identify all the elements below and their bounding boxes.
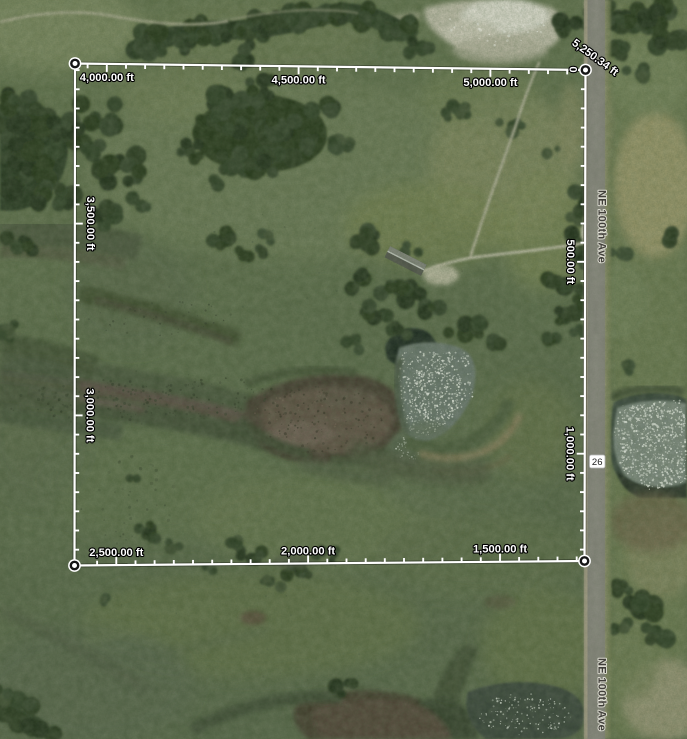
- svg-text:0: 0: [567, 66, 579, 72]
- svg-text:4,500.00 ft: 4,500.00 ft: [272, 74, 326, 86]
- svg-text:3,000.00 ft: 3,000.00 ft: [84, 388, 96, 442]
- svg-text:2,000.00 ft: 2,000.00 ft: [281, 545, 335, 557]
- svg-text:26: 26: [592, 457, 603, 468]
- svg-text:2,500.00 ft: 2,500.00 ft: [89, 547, 143, 559]
- svg-text:NE 100th Ave: NE 100th Ave: [596, 190, 608, 263]
- svg-text:3,500.00 ft: 3,500.00 ft: [84, 197, 96, 251]
- svg-text:500.00 ft: 500.00 ft: [564, 239, 576, 284]
- svg-text:4,000.00 ft: 4,000.00 ft: [80, 72, 134, 84]
- svg-text:5,000.00 ft: 5,000.00 ft: [463, 77, 517, 89]
- svg-text:1,500.00 ft: 1,500.00 ft: [473, 544, 527, 556]
- svg-text:1,000.00 ft: 1,000.00 ft: [564, 427, 576, 481]
- svg-text:NE 100th Ave: NE 100th Ave: [596, 658, 608, 731]
